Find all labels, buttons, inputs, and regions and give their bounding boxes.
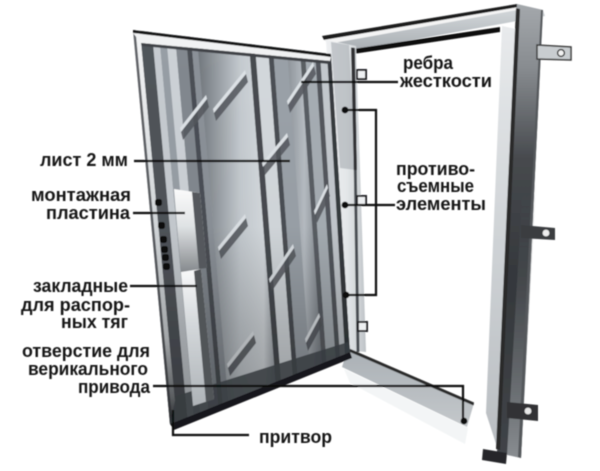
svg-text:закладные: закладные bbox=[33, 275, 128, 296]
svg-text:элементы: элементы bbox=[396, 193, 486, 214]
svg-text:лист 2 мм: лист 2 мм bbox=[40, 149, 128, 170]
svg-text:жесткости: жесткости bbox=[399, 70, 492, 91]
svg-text:ных тяг: ных тяг bbox=[61, 311, 128, 332]
svg-text:привода: привода bbox=[78, 376, 151, 397]
svg-text:притвор: притвор bbox=[259, 426, 332, 447]
svg-text:пластина: пластина bbox=[46, 202, 131, 223]
